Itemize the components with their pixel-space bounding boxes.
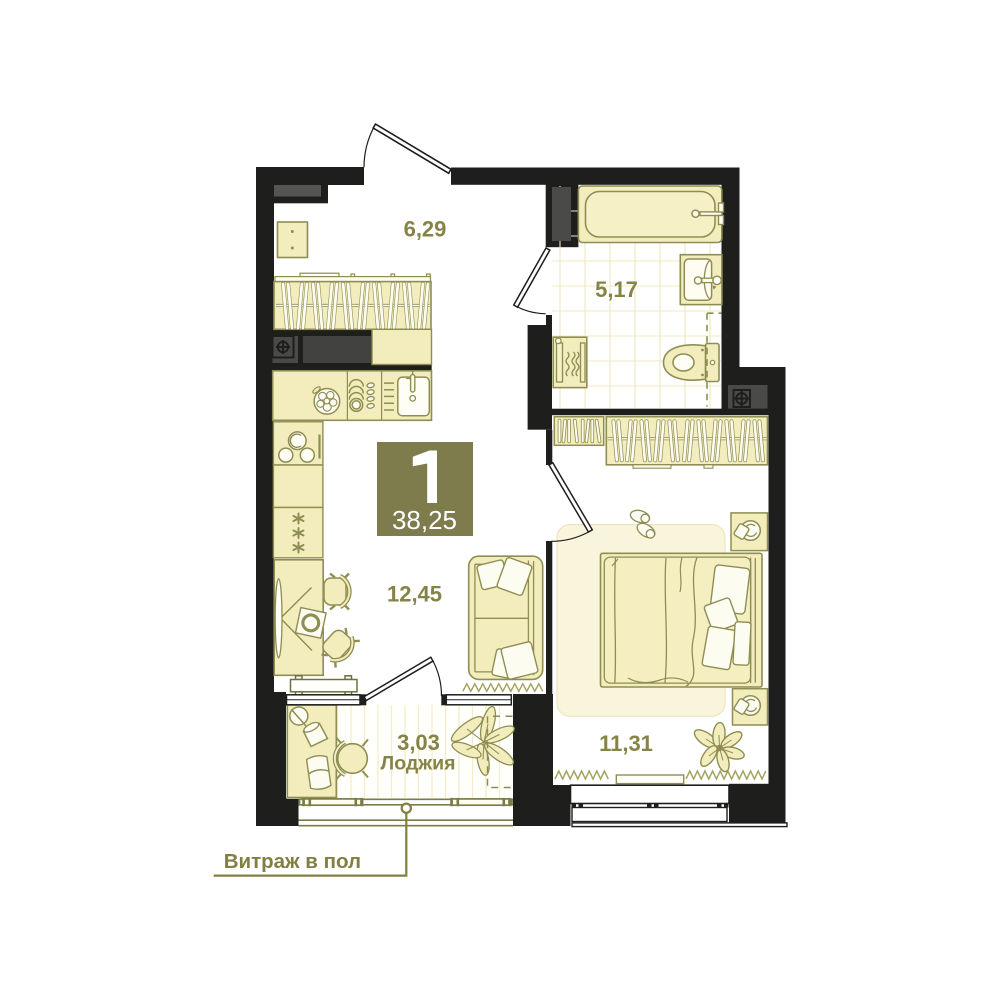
svg-text:5,17: 5,17 [595,277,638,302]
svg-text:12,45: 12,45 [387,582,442,607]
svg-text:38,25: 38,25 [392,505,457,535]
svg-text:6,29: 6,29 [404,217,447,242]
svg-text:11,31: 11,31 [599,731,653,756]
svg-text:3,03: 3,03 [397,730,440,755]
svg-text:Витраж в пол: Витраж в пол [224,850,361,873]
svg-text:Лоджия: Лоджия [381,753,456,775]
